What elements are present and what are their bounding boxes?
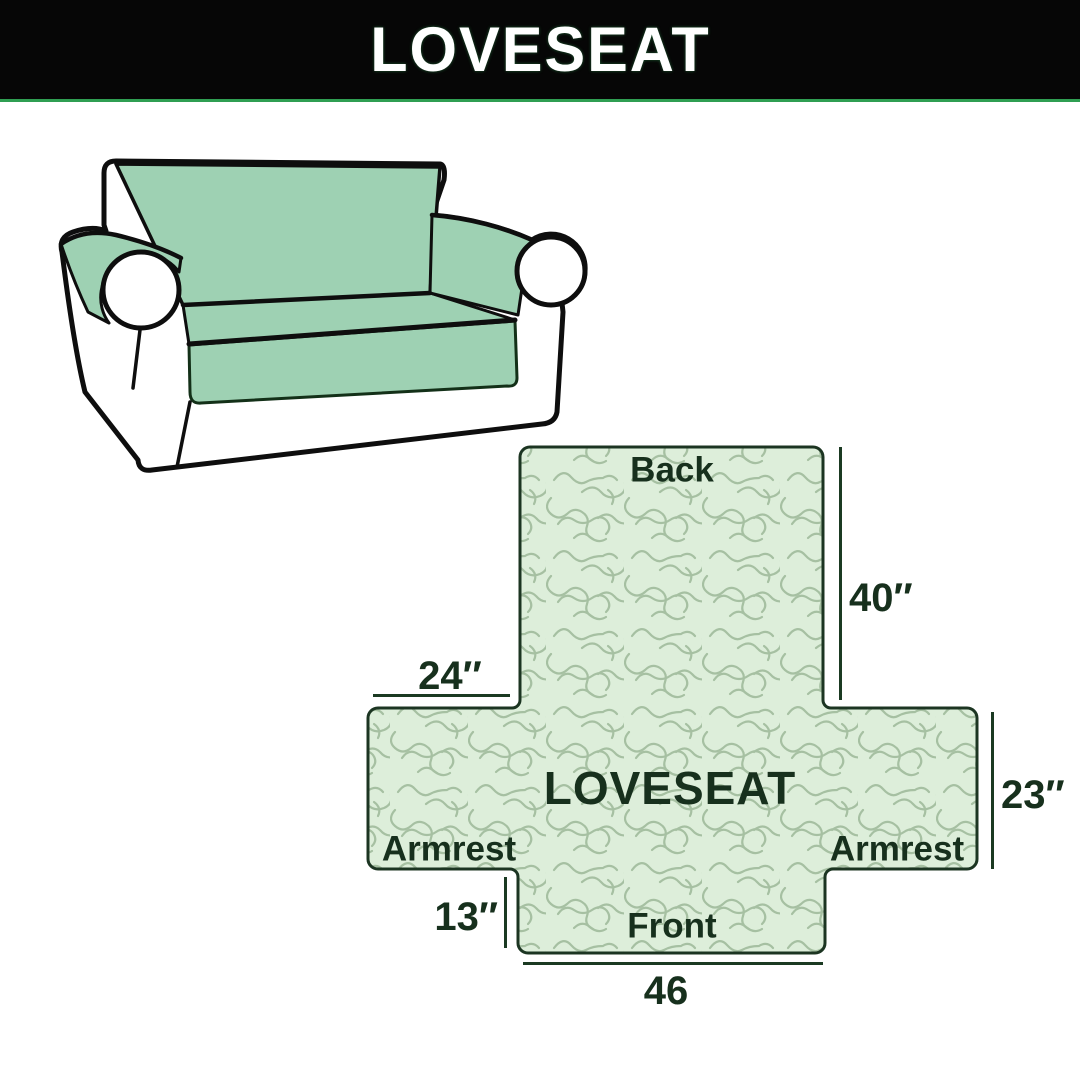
- armrest-right-label: Armrest: [830, 832, 964, 867]
- header-bar: LOVESEAT: [0, 0, 1080, 102]
- loveseat-infographic: { "header": { "title": "LOVESEAT", "bg_c…: [0, 0, 1080, 1080]
- dimension-line-13: [504, 877, 507, 948]
- cover-cross-shape: [368, 447, 977, 953]
- dimension-line-46: [523, 962, 823, 965]
- dimension-label-24: 24″: [418, 656, 482, 696]
- dimension-line-40: [839, 447, 842, 700]
- front-panel-label: Front: [627, 909, 716, 944]
- sofa-right-arm-front: [517, 237, 585, 305]
- dimension-label-23: 23″: [1001, 775, 1065, 815]
- back-panel-label: Back: [630, 453, 714, 488]
- dimension-label-13: 13″: [434, 897, 498, 937]
- sofa-left-arm-front: [103, 252, 179, 328]
- center-loveseat-label: LOVESEAT: [544, 765, 797, 811]
- dimension-label-40: 40″: [849, 578, 913, 618]
- dimension-line-23: [991, 712, 994, 869]
- page-title: LOVESEAT: [370, 14, 710, 86]
- armrest-left-label: Armrest: [382, 832, 516, 867]
- dimension-label-46: 46: [644, 971, 689, 1011]
